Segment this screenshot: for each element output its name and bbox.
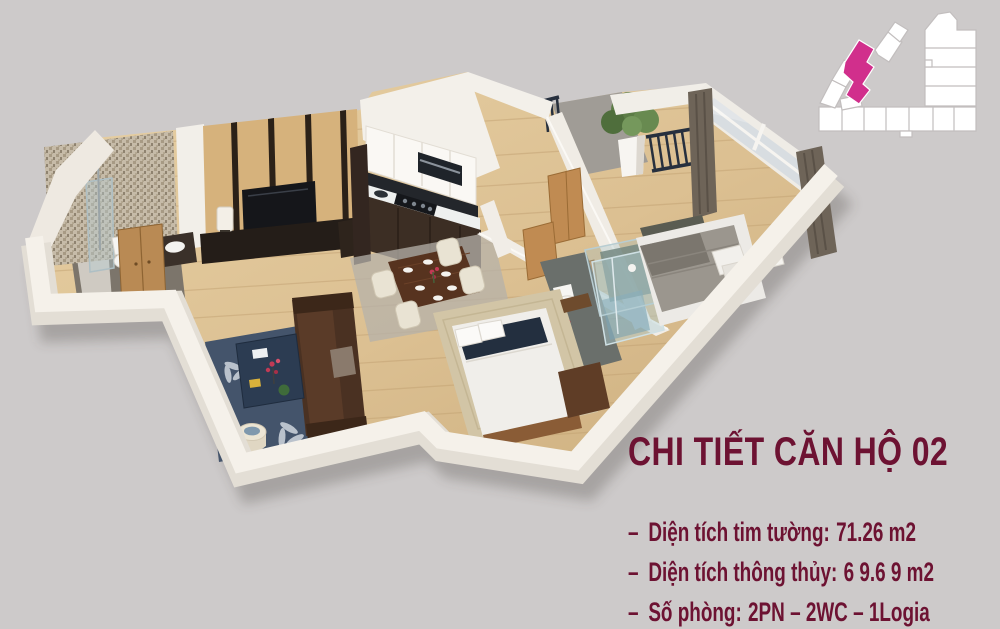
sofa-pillow: [330, 346, 356, 378]
dash: –: [628, 517, 639, 547]
detail-line-rooms: –Số phòng:2PN – 2WC – 1Logia: [628, 596, 934, 629]
detail-label: Diện tích tim tường:: [648, 517, 829, 547]
detail-line-gross-area: –Diện tích tim tường:71.26 m2: [628, 516, 934, 549]
notepad: [249, 378, 261, 387]
detail-value: 71.26 m2: [836, 517, 916, 547]
bowl: [279, 385, 290, 396]
dash: –: [628, 597, 639, 627]
detail-value: 2PN – 2WC – 1Logia: [748, 597, 930, 627]
tv-wall: [200, 109, 364, 264]
bathroom-divider-wall: [176, 124, 208, 250]
page-title: CHI TIẾT CĂN HỘ 02: [628, 430, 978, 474]
dash: –: [628, 557, 639, 587]
detail-value: 6 9.6 9 m2: [844, 557, 934, 587]
detail-label: Số phòng:: [648, 597, 741, 627]
table-lamp: [217, 207, 233, 231]
detail-label: Diện tích thông thủy:: [648, 557, 837, 587]
detail-line-net-area: –Diện tích thông thủy:6 9.6 9 m2: [628, 556, 934, 589]
caption-block: CHI TIẾT CĂN HỘ 02 –Diện tích tim tường:…: [628, 430, 1000, 629]
coffee-table: [236, 334, 304, 408]
apartment-details: –Diện tích tim tường:71.26 m2 –Diện tích…: [628, 516, 1000, 629]
